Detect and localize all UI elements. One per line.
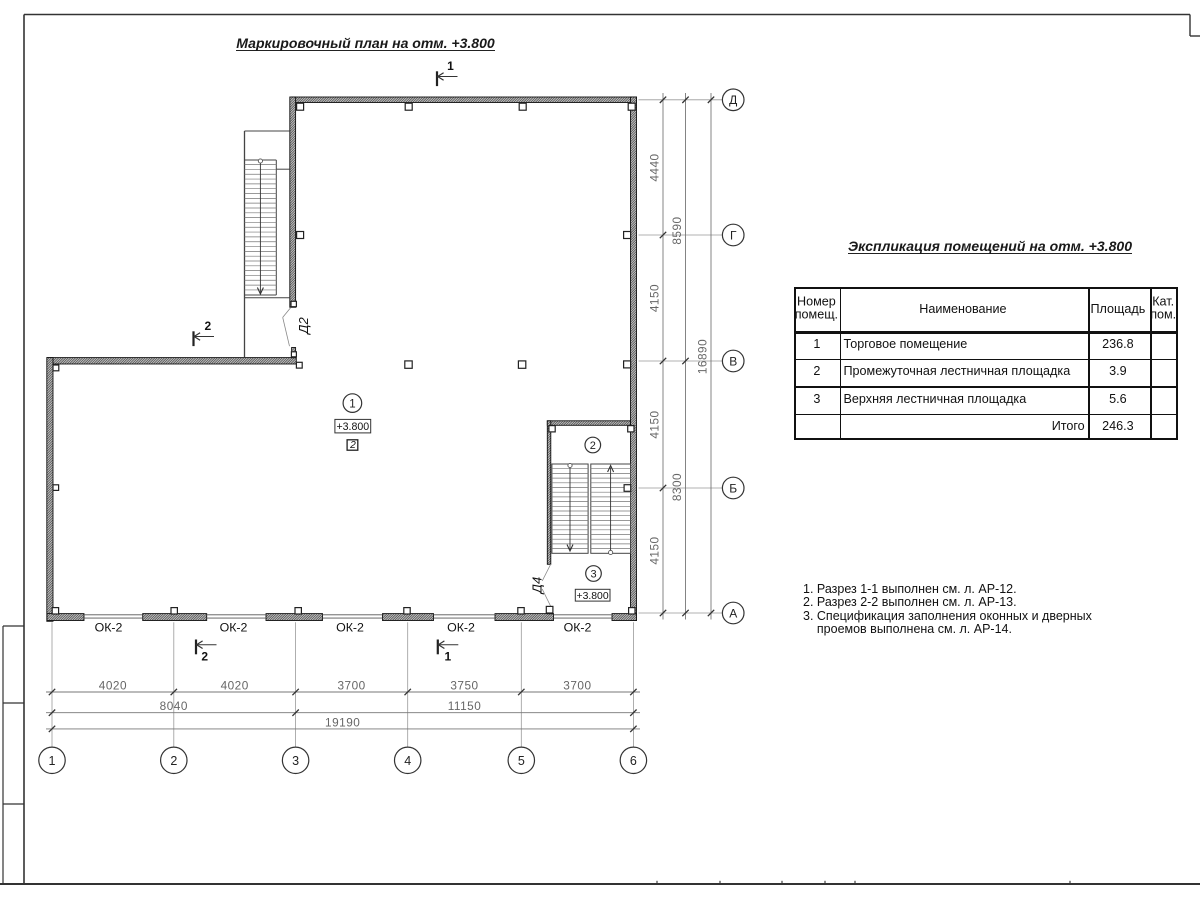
svg-text:8300: 8300 [670,473,684,501]
svg-text:ОК-2: ОК-2 [220,621,248,635]
svg-text:Д4: Д4 [529,577,544,595]
svg-text:2: 2 [170,754,177,768]
svg-text:5: 5 [518,754,525,768]
svg-text:Г: Г [730,228,737,242]
svg-text:2: 2 [590,440,596,452]
svg-text:8040: 8040 [160,699,188,713]
svg-text:Д2: Д2 [296,317,311,336]
svg-text:4020: 4020 [221,679,249,693]
svg-text:2: 2 [201,650,208,664]
svg-text:1: 1 [444,650,451,664]
svg-text:3: 3 [590,569,596,581]
svg-text:8590: 8590 [670,216,684,244]
svg-text:ОК-2: ОК-2 [336,621,364,635]
svg-text:А: А [729,606,737,620]
svg-text:4: 4 [404,754,411,768]
svg-text:11150: 11150 [448,699,482,713]
svg-text:2: 2 [204,319,211,333]
svg-text:+3.800: +3.800 [336,421,369,433]
svg-text:4150: 4150 [648,410,662,438]
svg-text:19190: 19190 [325,715,360,729]
svg-text:ОК-2: ОК-2 [95,621,123,635]
svg-text:В: В [729,354,737,368]
svg-text:3700: 3700 [337,679,365,693]
svg-text:Б: Б [729,481,737,495]
svg-text:6: 6 [630,754,637,768]
svg-text:Д: Д [729,93,737,107]
svg-text:16890: 16890 [696,339,710,374]
svg-text:ОК-2: ОК-2 [564,621,592,635]
svg-text:1: 1 [49,754,56,768]
svg-text:2: 2 [349,440,356,451]
svg-text:ОК-2: ОК-2 [447,621,475,635]
svg-text:4440: 4440 [648,153,662,181]
svg-text:1: 1 [447,59,454,73]
svg-text:4150: 4150 [648,536,662,564]
svg-text:3700: 3700 [563,679,591,693]
svg-text:3750: 3750 [450,679,478,693]
svg-text:3: 3 [292,754,299,768]
svg-text:4150: 4150 [648,284,662,312]
svg-text:1: 1 [349,398,355,410]
svg-text:+3.800: +3.800 [577,591,609,602]
svg-text:4020: 4020 [99,679,127,693]
